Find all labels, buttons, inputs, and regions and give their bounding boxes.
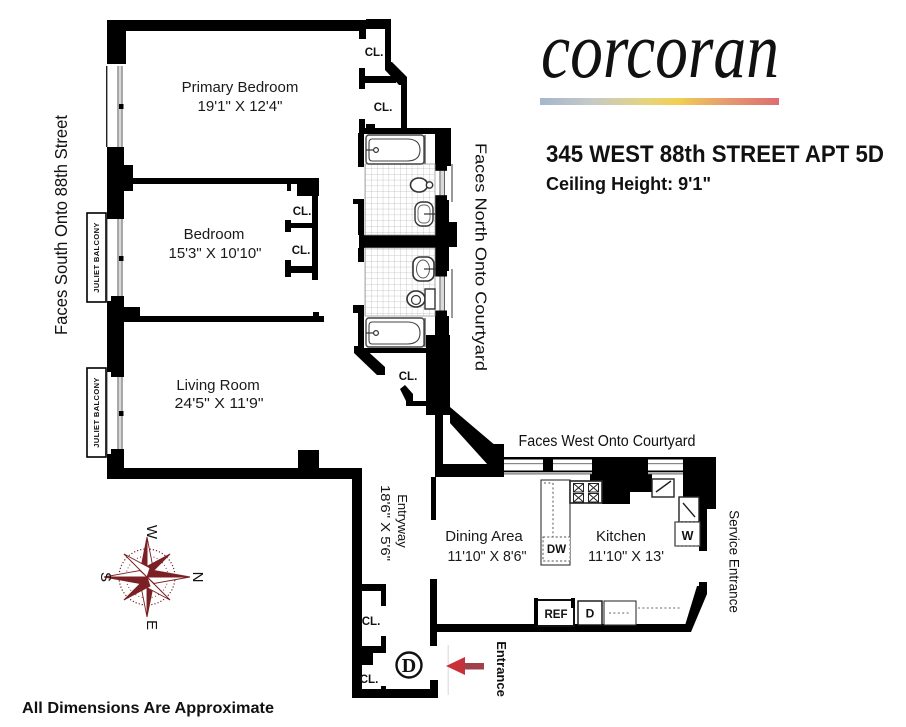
svg-text:11'10" X 8'6": 11'10" X 8'6" [448, 548, 527, 565]
svg-text:Living Room: Living Room [176, 377, 259, 394]
svg-text:CL.: CL. [360, 674, 379, 686]
svg-text:W: W [682, 529, 694, 543]
svg-text:D: D [586, 607, 595, 621]
svg-text:REF: REF [545, 609, 568, 621]
svg-text:Entrance: Entrance [494, 641, 509, 697]
svg-text:All Dimensions Are Approximate: All Dimensions Are Approximate [22, 700, 274, 717]
svg-text:Service Entrance: Service Entrance [727, 510, 742, 613]
svg-text:345 WEST 88th STREET APT 5D: 345 WEST 88th STREET APT 5D [546, 141, 884, 168]
svg-text:CL.: CL. [292, 245, 311, 257]
svg-text:24'5" X 11'9": 24'5" X 11'9" [175, 395, 264, 412]
svg-text:Kitchen: Kitchen [596, 528, 646, 545]
svg-text:Faces West Onto Courtyard: Faces West Onto Courtyard [519, 433, 696, 450]
svg-text:N: N [189, 572, 206, 583]
svg-text:D: D [402, 655, 416, 677]
svg-text:Dining Area: Dining Area [445, 528, 523, 545]
svg-text:DW: DW [547, 544, 566, 556]
svg-text:Faces North Onto Courtyard: Faces North Onto Courtyard [472, 143, 489, 371]
svg-text:CL.: CL. [365, 47, 384, 59]
svg-text:CL.: CL. [362, 616, 381, 628]
svg-text:18'6" X 5'6": 18'6" X 5'6" [378, 485, 393, 561]
svg-text:S: S [97, 572, 114, 582]
svg-text:Ceiling Height: 9'1": Ceiling Height: 9'1" [546, 174, 711, 194]
svg-text:11'10" X 13': 11'10" X 13' [588, 548, 664, 565]
svg-text:JULIET BALCONY: JULIET BALCONY [92, 377, 101, 448]
svg-text:19'1" X 12'4": 19'1" X 12'4" [198, 98, 283, 115]
svg-text:15'3" X 10'10": 15'3" X 10'10" [169, 245, 262, 262]
svg-text:Faces South Onto 88th Street: Faces South Onto 88th Street [51, 115, 71, 335]
svg-text:CL.: CL. [399, 371, 418, 383]
svg-text:E: E [143, 620, 160, 630]
svg-text:Bedroom: Bedroom [184, 226, 245, 243]
svg-text:Primary Bedroom: Primary Bedroom [182, 79, 299, 96]
svg-text:CL.: CL. [293, 206, 312, 218]
svg-text:W: W [143, 525, 160, 540]
svg-text:CL.: CL. [374, 102, 393, 114]
svg-text:Entryway: Entryway [395, 494, 410, 548]
svg-text:JULIET BALCONY: JULIET BALCONY [92, 222, 101, 293]
svg-text:corcoran: corcoran [541, 8, 779, 95]
